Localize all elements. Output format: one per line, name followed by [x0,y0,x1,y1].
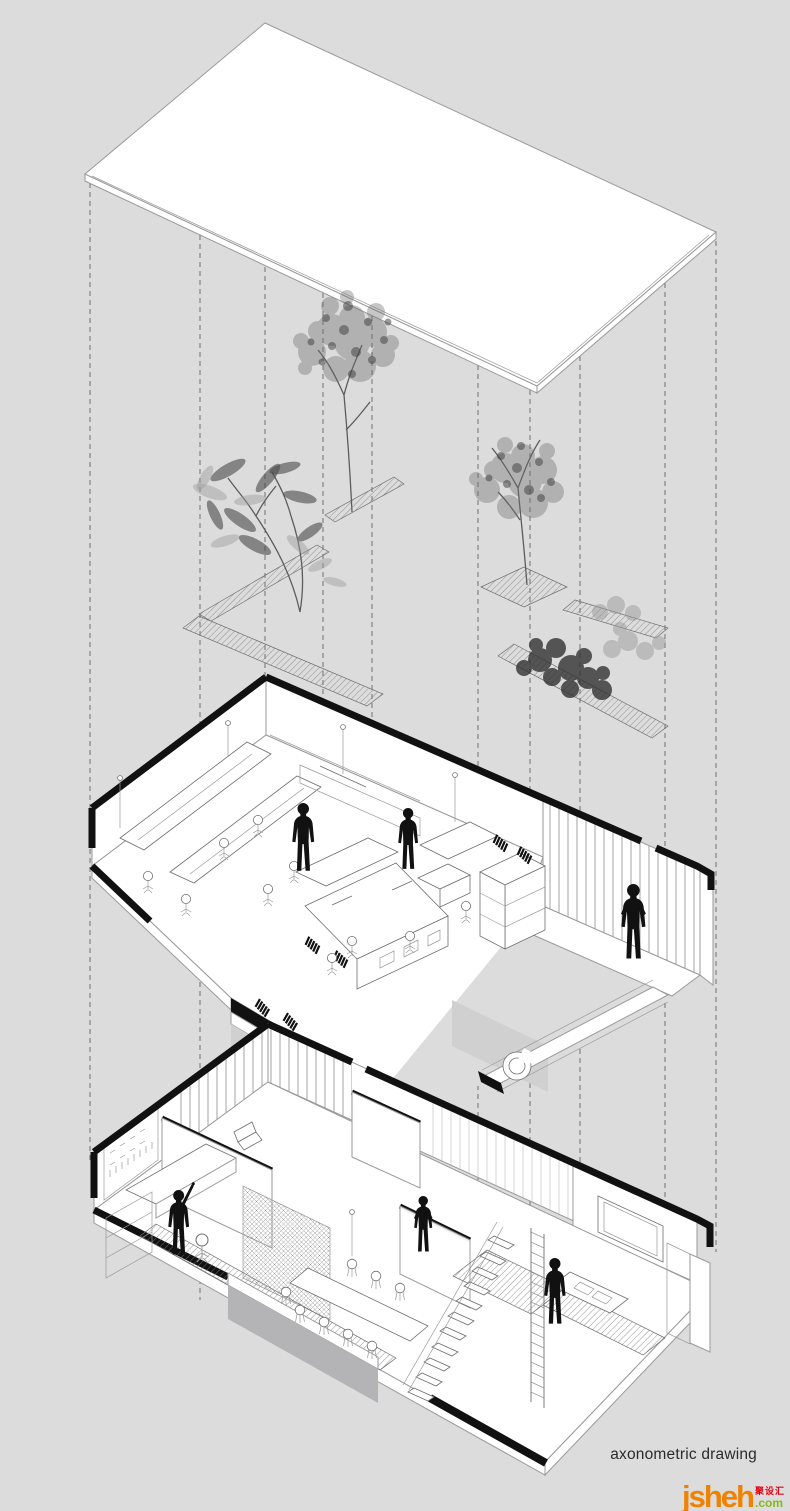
logo-tld-text: .com [755,1497,783,1509]
logo-cjk-text: 聚设汇 [755,1487,785,1496]
drawing-caption: axonometric drawing [0,1446,757,1464]
exploded-axonometric-figure [0,0,790,1511]
logo-wordmark: jsheh [682,1485,753,1509]
jsheh-logo: jsheh 聚设汇 .com [682,1485,785,1509]
axonometric-drawing-canvas: axonometric drawing jsheh 聚设汇 .com [0,0,790,1511]
